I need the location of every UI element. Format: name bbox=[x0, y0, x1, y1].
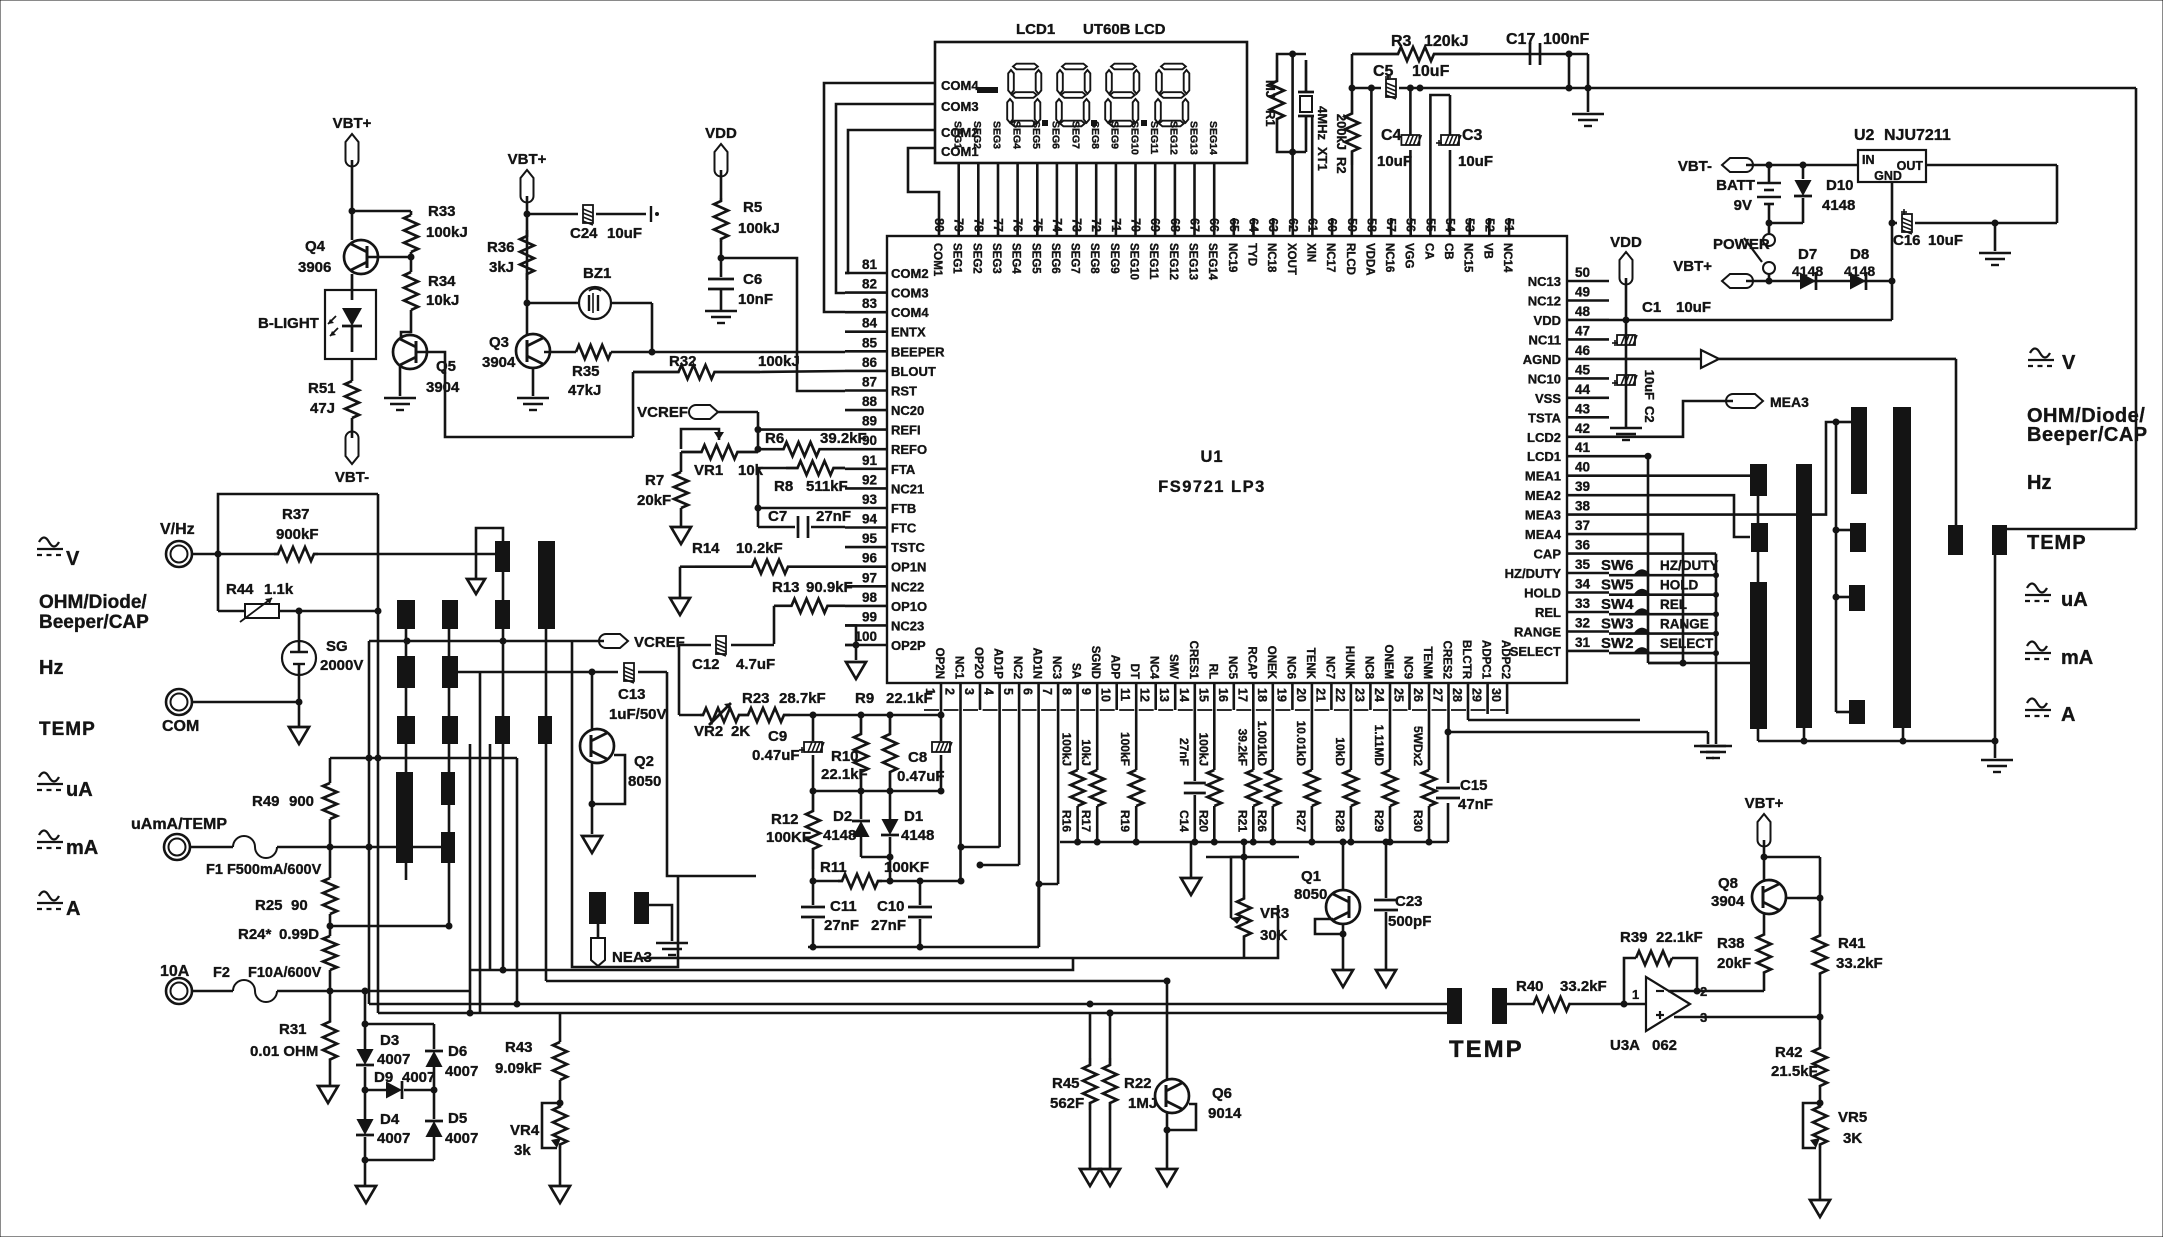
svg-text:3904: 3904 bbox=[482, 354, 516, 371]
svg-text:SG: SG bbox=[326, 638, 348, 655]
svg-text:OP2N: OP2N bbox=[933, 648, 945, 679]
svg-text:94: 94 bbox=[862, 512, 878, 527]
svg-text:34: 34 bbox=[1575, 577, 1591, 592]
svg-text:100KF: 100KF bbox=[884, 859, 929, 876]
svg-text:R38: R38 bbox=[1717, 935, 1745, 952]
svg-text:58: 58 bbox=[1364, 218, 1378, 232]
svg-text:D2: D2 bbox=[833, 808, 852, 825]
svg-text:27nF: 27nF bbox=[816, 508, 851, 525]
svg-text:17: 17 bbox=[1235, 688, 1249, 702]
svg-text:Hz: Hz bbox=[2027, 472, 2051, 494]
svg-text:54: 54 bbox=[1443, 218, 1457, 232]
svg-text:R20: R20 bbox=[1196, 810, 1210, 832]
svg-text:86: 86 bbox=[862, 355, 878, 370]
svg-text:92: 92 bbox=[862, 472, 877, 487]
svg-text:C8: C8 bbox=[908, 749, 927, 766]
svg-text:NC15: NC15 bbox=[1462, 243, 1474, 273]
svg-text:97: 97 bbox=[862, 570, 877, 585]
svg-text:CA: CA bbox=[1422, 243, 1434, 260]
svg-text:FS9721 LP3: FS9721 LP3 bbox=[1158, 478, 1266, 496]
svg-text:RST: RST bbox=[891, 384, 917, 399]
svg-text:C17: C17 bbox=[1506, 31, 1535, 48]
svg-text:CB: CB bbox=[1442, 243, 1454, 260]
svg-text:63: 63 bbox=[1266, 218, 1280, 232]
svg-text:Q3: Q3 bbox=[489, 334, 509, 351]
svg-text:VBT-: VBT- bbox=[335, 469, 369, 486]
svg-text:U1: U1 bbox=[1200, 448, 1223, 466]
svg-text:062: 062 bbox=[1652, 1037, 1677, 1054]
svg-text:CRES2: CRES2 bbox=[1441, 641, 1453, 679]
svg-text:Q1: Q1 bbox=[1301, 868, 1321, 885]
svg-text:F2: F2 bbox=[213, 965, 230, 981]
svg-text:10kJ: 10kJ bbox=[1079, 739, 1093, 766]
svg-text:SEG10: SEG10 bbox=[1128, 121, 1140, 155]
svg-text:NC2: NC2 bbox=[1011, 656, 1023, 679]
svg-text:R21: R21 bbox=[1235, 810, 1249, 832]
svg-text:100KF: 100KF bbox=[766, 829, 811, 846]
svg-text:42: 42 bbox=[1575, 421, 1590, 436]
svg-text:89: 89 bbox=[862, 414, 877, 429]
svg-text:XT1: XT1 bbox=[1315, 147, 1330, 171]
svg-text:XIN: XIN bbox=[1304, 243, 1316, 262]
svg-text:SELECT: SELECT bbox=[1660, 636, 1714, 651]
svg-text:NC12: NC12 bbox=[1528, 294, 1561, 309]
svg-text:10uF: 10uF bbox=[1412, 63, 1450, 80]
svg-text:R26: R26 bbox=[1255, 810, 1269, 832]
svg-text:98: 98 bbox=[862, 590, 878, 605]
svg-text:90: 90 bbox=[291, 897, 308, 914]
svg-text:AD1P: AD1P bbox=[992, 648, 1004, 679]
svg-text:4007: 4007 bbox=[402, 1069, 435, 1086]
svg-text:R19: R19 bbox=[1118, 810, 1132, 832]
svg-text:75: 75 bbox=[1030, 218, 1044, 232]
svg-text:1MJ: 1MJ bbox=[1128, 1095, 1157, 1112]
svg-text:SEG9: SEG9 bbox=[1109, 121, 1121, 149]
svg-text:10uF: 10uF bbox=[1458, 153, 1493, 170]
svg-text:85: 85 bbox=[862, 335, 878, 350]
svg-text:MEA2: MEA2 bbox=[1525, 488, 1561, 503]
svg-text:10uF: 10uF bbox=[607, 225, 642, 242]
svg-text:HZ/DUTY: HZ/DUTY bbox=[1660, 558, 1719, 573]
svg-text:TYD: TYD bbox=[1246, 243, 1258, 266]
svg-text:120kJ: 120kJ bbox=[1424, 33, 1469, 50]
svg-text:ONEM: ONEM bbox=[1382, 645, 1394, 680]
svg-text:BLCTR: BLCTR bbox=[1460, 640, 1472, 680]
svg-text:25: 25 bbox=[1392, 688, 1406, 702]
svg-text:mA: mA bbox=[66, 837, 98, 859]
svg-text:COM2: COM2 bbox=[891, 266, 929, 281]
svg-text:SEG14: SEG14 bbox=[1206, 243, 1218, 281]
svg-text:21.5kF: 21.5kF bbox=[1771, 1063, 1818, 1080]
svg-text:51: 51 bbox=[1502, 218, 1516, 232]
svg-text:REFO: REFO bbox=[891, 442, 927, 457]
svg-text:37: 37 bbox=[1575, 518, 1590, 533]
svg-text:REL: REL bbox=[1660, 597, 1687, 612]
svg-text:R43: R43 bbox=[505, 1039, 533, 1056]
svg-text:73: 73 bbox=[1070, 218, 1084, 232]
svg-text:57: 57 bbox=[1384, 218, 1398, 232]
svg-text:ADP: ADP bbox=[1109, 655, 1121, 680]
svg-text:SEG6: SEG6 bbox=[1050, 121, 1062, 149]
svg-text:D9: D9 bbox=[374, 1069, 393, 1086]
svg-text:96: 96 bbox=[862, 551, 878, 566]
svg-text:R49: R49 bbox=[252, 793, 280, 810]
svg-text:CAP: CAP bbox=[1534, 547, 1562, 562]
svg-text:C5: C5 bbox=[1373, 63, 1394, 80]
svg-text:100kJ: 100kJ bbox=[426, 224, 468, 241]
svg-text:ADPC1: ADPC1 bbox=[1480, 640, 1492, 680]
svg-text:SEG11: SEG11 bbox=[1147, 243, 1159, 280]
svg-text:38: 38 bbox=[1575, 499, 1591, 514]
svg-text:200kJ: 200kJ bbox=[1334, 114, 1349, 150]
svg-text:ENTX: ENTX bbox=[891, 325, 926, 340]
svg-text:R41: R41 bbox=[1838, 935, 1866, 952]
svg-text:R33: R33 bbox=[428, 203, 456, 220]
svg-text:SW2: SW2 bbox=[1601, 635, 1634, 652]
svg-text:900: 900 bbox=[289, 793, 314, 810]
svg-text:OP2O: OP2O bbox=[972, 647, 984, 679]
svg-text:Beeper/CAP: Beeper/CAP bbox=[39, 612, 149, 633]
svg-text:50: 50 bbox=[1575, 265, 1590, 280]
svg-text:100kF: 100kF bbox=[1118, 732, 1132, 766]
svg-text:26: 26 bbox=[1411, 688, 1425, 702]
svg-text:SEG5: SEG5 bbox=[1029, 243, 1041, 274]
svg-text:C6: C6 bbox=[743, 271, 762, 288]
svg-text:SELECT: SELECT bbox=[1510, 644, 1561, 659]
svg-text:VBT+: VBT+ bbox=[1745, 795, 1784, 812]
svg-text:10: 10 bbox=[1099, 688, 1113, 702]
svg-text:R39: R39 bbox=[1620, 929, 1648, 946]
svg-text:10k: 10k bbox=[738, 462, 764, 479]
svg-text:NC4: NC4 bbox=[1148, 656, 1160, 680]
svg-text:C15: C15 bbox=[1460, 777, 1488, 794]
svg-text:COM4: COM4 bbox=[941, 78, 979, 93]
svg-text:60: 60 bbox=[1325, 218, 1339, 232]
svg-text:SEG7: SEG7 bbox=[1069, 121, 1081, 149]
svg-text:4148: 4148 bbox=[823, 827, 856, 844]
svg-text:R8: R8 bbox=[774, 478, 793, 495]
svg-text:R6: R6 bbox=[765, 430, 784, 447]
svg-text:Q2: Q2 bbox=[634, 753, 654, 770]
svg-text:29: 29 bbox=[1470, 688, 1484, 702]
svg-text:R37: R37 bbox=[282, 506, 310, 523]
svg-text:BLOUT: BLOUT bbox=[891, 364, 936, 379]
svg-text:10kJ: 10kJ bbox=[426, 292, 459, 309]
svg-text:35: 35 bbox=[1575, 557, 1591, 572]
svg-text:VR2: VR2 bbox=[694, 723, 723, 740]
svg-text:39.2kF: 39.2kF bbox=[820, 430, 867, 447]
svg-text:4007: 4007 bbox=[445, 1130, 478, 1147]
svg-text:Q4: Q4 bbox=[305, 238, 326, 255]
svg-text:C4: C4 bbox=[1381, 127, 1402, 144]
svg-text:10uF: 10uF bbox=[1676, 299, 1711, 316]
svg-text:SEG10: SEG10 bbox=[1128, 243, 1140, 280]
svg-text:TEMP: TEMP bbox=[2027, 532, 2087, 554]
svg-text:NC3: NC3 bbox=[1050, 656, 1062, 679]
svg-text:Q8: Q8 bbox=[1718, 875, 1738, 892]
svg-text:1.11MD: 1.11MD bbox=[1372, 725, 1386, 767]
svg-text:HZ/DUTY: HZ/DUTY bbox=[1505, 566, 1562, 581]
svg-text:COM4: COM4 bbox=[891, 305, 929, 320]
svg-text:MEA3: MEA3 bbox=[1525, 508, 1561, 523]
svg-text:R12: R12 bbox=[771, 811, 799, 828]
svg-text:VDD: VDD bbox=[1534, 313, 1561, 328]
svg-text:D3: D3 bbox=[380, 1032, 399, 1049]
svg-text:C7: C7 bbox=[768, 508, 787, 525]
svg-text:9V: 9V bbox=[1734, 197, 1752, 214]
svg-text:SW4: SW4 bbox=[1601, 596, 1634, 613]
svg-text:81: 81 bbox=[862, 257, 878, 272]
svg-text:COM3: COM3 bbox=[941, 99, 979, 114]
svg-text:39: 39 bbox=[1575, 479, 1590, 494]
svg-text:CRES1: CRES1 bbox=[1187, 641, 1199, 680]
svg-text:SEG2: SEG2 bbox=[970, 243, 982, 274]
svg-text:MEA1: MEA1 bbox=[1525, 469, 1561, 484]
svg-text:R1: R1 bbox=[1263, 110, 1278, 127]
svg-text:FTA: FTA bbox=[891, 462, 916, 477]
svg-text:OP2P: OP2P bbox=[891, 638, 926, 653]
svg-text:R51: R51 bbox=[308, 380, 336, 397]
svg-text:VCREF: VCREF bbox=[637, 404, 688, 421]
svg-text:53: 53 bbox=[1463, 218, 1477, 232]
svg-text:87: 87 bbox=[862, 375, 877, 390]
svg-text:67: 67 bbox=[1188, 218, 1202, 232]
svg-text:30K: 30K bbox=[1260, 927, 1288, 944]
svg-text:C3: C3 bbox=[1462, 127, 1483, 144]
svg-text:SGND: SGND bbox=[1089, 646, 1101, 679]
svg-text:39.2kF: 39.2kF bbox=[1235, 729, 1249, 766]
svg-text:Beeper/CAP: Beeper/CAP bbox=[2027, 424, 2148, 446]
svg-text:33.2kF: 33.2kF bbox=[1560, 978, 1607, 995]
svg-text:NC22: NC22 bbox=[891, 579, 924, 594]
svg-text:3k: 3k bbox=[514, 1142, 531, 1159]
svg-text:NC6: NC6 bbox=[1284, 656, 1296, 679]
svg-text:100nF: 100nF bbox=[1543, 31, 1589, 48]
svg-text:V/Hz: V/Hz bbox=[160, 521, 195, 538]
svg-text:R44: R44 bbox=[226, 581, 254, 598]
svg-text:64: 64 bbox=[1247, 218, 1261, 232]
svg-text:R10: R10 bbox=[831, 748, 859, 765]
svg-text:NC21: NC21 bbox=[891, 481, 924, 496]
svg-text:R13: R13 bbox=[772, 579, 800, 596]
svg-text:MEA4: MEA4 bbox=[1525, 527, 1562, 542]
svg-text:C2: C2 bbox=[1642, 406, 1657, 423]
svg-text:C11: C11 bbox=[830, 898, 857, 915]
svg-text:TEMP: TEMP bbox=[1449, 1036, 1524, 1063]
svg-text:100: 100 bbox=[854, 629, 877, 644]
svg-text:RANGE: RANGE bbox=[1514, 625, 1561, 640]
svg-text:10uF: 10uF bbox=[1377, 153, 1412, 170]
svg-text:F10A/600V: F10A/600V bbox=[248, 965, 322, 981]
svg-text:61: 61 bbox=[1305, 218, 1319, 232]
svg-text:BZ1: BZ1 bbox=[583, 265, 611, 282]
svg-text:6: 6 bbox=[1021, 688, 1035, 695]
svg-text:COM: COM bbox=[162, 718, 199, 735]
svg-text:8050: 8050 bbox=[628, 773, 661, 790]
svg-text:V: V bbox=[66, 548, 80, 570]
svg-text:NC13: NC13 bbox=[1528, 274, 1561, 289]
svg-text:SEG12: SEG12 bbox=[1168, 121, 1180, 155]
svg-text:79: 79 bbox=[952, 218, 966, 232]
svg-text:SEG2: SEG2 bbox=[971, 121, 983, 149]
svg-text:27nF: 27nF bbox=[824, 917, 859, 934]
svg-text:TENK: TENK bbox=[1304, 648, 1316, 680]
svg-text:32: 32 bbox=[1575, 616, 1590, 631]
svg-text:R28: R28 bbox=[1333, 810, 1347, 832]
svg-text:SEG8: SEG8 bbox=[1088, 243, 1100, 274]
svg-text:48: 48 bbox=[1575, 304, 1591, 319]
svg-text:VBT+: VBT+ bbox=[1673, 258, 1712, 275]
svg-text:100kJ: 100kJ bbox=[1060, 733, 1074, 766]
svg-text:NC10: NC10 bbox=[1528, 371, 1561, 386]
svg-text:RCAP: RCAP bbox=[1245, 646, 1257, 679]
svg-text:9: 9 bbox=[1079, 688, 1093, 695]
svg-text:C24: C24 bbox=[570, 225, 598, 242]
svg-text:47nF: 47nF bbox=[1458, 796, 1493, 813]
svg-text:69: 69 bbox=[1148, 218, 1162, 232]
svg-text:SEG7: SEG7 bbox=[1069, 243, 1081, 274]
svg-text:22.1kF: 22.1kF bbox=[821, 766, 868, 783]
svg-text:84: 84 bbox=[862, 316, 878, 331]
svg-text:R7: R7 bbox=[645, 472, 664, 489]
svg-text:12: 12 bbox=[1138, 688, 1152, 702]
svg-text:500pF: 500pF bbox=[1388, 913, 1431, 930]
svg-text:RANGE: RANGE bbox=[1660, 617, 1709, 632]
svg-text:71: 71 bbox=[1109, 218, 1123, 232]
svg-text:15: 15 bbox=[1196, 688, 1210, 702]
svg-text:R36: R36 bbox=[487, 239, 515, 256]
svg-text:uA: uA bbox=[2061, 589, 2088, 611]
svg-text:D5: D5 bbox=[448, 1110, 467, 1127]
svg-text:NC7: NC7 bbox=[1323, 656, 1335, 679]
svg-text:R25: R25 bbox=[255, 897, 283, 914]
svg-text:AD1N: AD1N bbox=[1031, 648, 1043, 679]
svg-text:R3: R3 bbox=[1391, 33, 1412, 50]
svg-text:4148: 4148 bbox=[1844, 263, 1875, 279]
svg-text:R35: R35 bbox=[572, 363, 600, 380]
svg-text:80: 80 bbox=[932, 218, 946, 232]
svg-text:59: 59 bbox=[1345, 218, 1359, 232]
svg-text:SEG6: SEG6 bbox=[1049, 243, 1061, 274]
svg-text:R17: R17 bbox=[1079, 810, 1093, 832]
svg-text:SEG12: SEG12 bbox=[1167, 243, 1179, 280]
svg-text:3kJ: 3kJ bbox=[489, 259, 514, 276]
svg-text:COM3: COM3 bbox=[891, 286, 929, 301]
svg-text:VB: VB bbox=[1481, 243, 1493, 259]
svg-text:LCD2: LCD2 bbox=[1527, 430, 1561, 445]
svg-text:SEG13: SEG13 bbox=[1187, 121, 1199, 155]
svg-text:20kF: 20kF bbox=[1717, 955, 1751, 972]
svg-text:V: V bbox=[2062, 352, 2076, 374]
svg-text:HOLD: HOLD bbox=[1660, 578, 1698, 593]
svg-text:SEG14: SEG14 bbox=[1207, 121, 1219, 155]
svg-text:3: 3 bbox=[962, 688, 976, 695]
svg-text:4007: 4007 bbox=[377, 1130, 410, 1147]
svg-text:FTB: FTB bbox=[891, 501, 916, 516]
svg-text:900kF: 900kF bbox=[276, 526, 319, 543]
svg-text:D8: D8 bbox=[1850, 246, 1869, 263]
svg-text:10uF: 10uF bbox=[1642, 370, 1657, 400]
svg-text:NC14: NC14 bbox=[1501, 243, 1513, 273]
svg-text:A: A bbox=[66, 898, 80, 920]
svg-text:VR1: VR1 bbox=[694, 462, 723, 479]
svg-text:0.01 OHM: 0.01 OHM bbox=[250, 1043, 318, 1060]
svg-text:22.1kF: 22.1kF bbox=[886, 690, 933, 707]
svg-text:74: 74 bbox=[1050, 218, 1064, 232]
svg-text:68: 68 bbox=[1168, 218, 1182, 232]
svg-text:VR5: VR5 bbox=[1838, 1109, 1867, 1126]
svg-text:F1 F500mA/600V: F1 F500mA/600V bbox=[206, 862, 322, 878]
svg-text:0.47uF: 0.47uF bbox=[752, 747, 800, 764]
svg-text:OP1N: OP1N bbox=[891, 560, 926, 575]
svg-text:76: 76 bbox=[1011, 218, 1025, 232]
svg-text:UT60B LCD: UT60B LCD bbox=[1083, 21, 1166, 38]
svg-text:95: 95 bbox=[862, 531, 878, 546]
svg-text:XOUT: XOUT bbox=[1285, 243, 1297, 275]
svg-text:7: 7 bbox=[1040, 688, 1054, 695]
svg-text:COM1: COM1 bbox=[931, 243, 943, 277]
svg-text:R14: R14 bbox=[692, 540, 720, 557]
svg-text:4148: 4148 bbox=[901, 827, 934, 844]
svg-text:R42: R42 bbox=[1775, 1044, 1803, 1061]
svg-text:33: 33 bbox=[1575, 596, 1591, 611]
svg-text:R40: R40 bbox=[1516, 978, 1544, 995]
svg-text:LCD1: LCD1 bbox=[1527, 449, 1561, 464]
svg-text:RLCD: RLCD bbox=[1344, 243, 1356, 275]
svg-text:47J: 47J bbox=[310, 400, 335, 417]
svg-text:OP1O: OP1O bbox=[891, 599, 927, 614]
svg-text:47kJ: 47kJ bbox=[568, 382, 601, 399]
svg-text:9014: 9014 bbox=[1208, 1105, 1242, 1122]
svg-text:VDD: VDD bbox=[1610, 234, 1642, 251]
svg-text:562F: 562F bbox=[1050, 1095, 1084, 1112]
svg-text:28: 28 bbox=[1450, 688, 1464, 702]
svg-text:B-LIGHT: B-LIGHT bbox=[258, 315, 319, 332]
svg-text:ONEK: ONEK bbox=[1265, 646, 1277, 680]
svg-text:2000V: 2000V bbox=[320, 657, 363, 674]
svg-text:90.9kF: 90.9kF bbox=[806, 579, 853, 596]
svg-text:36: 36 bbox=[1575, 538, 1591, 553]
svg-text:MEA3: MEA3 bbox=[1770, 394, 1809, 410]
svg-text:27nF: 27nF bbox=[871, 917, 906, 934]
svg-text:VSS: VSS bbox=[1535, 391, 1561, 406]
svg-text:FTC: FTC bbox=[891, 521, 917, 536]
svg-text:R31: R31 bbox=[279, 1021, 307, 1038]
svg-text:LCD1: LCD1 bbox=[1016, 21, 1055, 38]
svg-text:Hz: Hz bbox=[39, 657, 63, 679]
svg-text:OHM/Diode/: OHM/Diode/ bbox=[39, 592, 147, 613]
svg-text:1: 1 bbox=[1632, 987, 1639, 1002]
svg-text:C16: C16 bbox=[1893, 232, 1921, 249]
svg-text:D1: D1 bbox=[904, 808, 923, 825]
svg-text:BATT: BATT bbox=[1716, 177, 1755, 194]
svg-text:31: 31 bbox=[1575, 635, 1591, 650]
svg-text:23: 23 bbox=[1352, 688, 1366, 702]
svg-text:11: 11 bbox=[1118, 688, 1132, 701]
svg-text:REFI: REFI bbox=[891, 423, 921, 438]
svg-text:NC8: NC8 bbox=[1362, 656, 1374, 680]
svg-text:22.1kF: 22.1kF bbox=[1656, 929, 1703, 946]
svg-text:VDDA: VDDA bbox=[1363, 243, 1375, 276]
svg-text:D10: D10 bbox=[1826, 177, 1854, 194]
svg-text:C9: C9 bbox=[768, 728, 787, 745]
svg-text:R29: R29 bbox=[1372, 810, 1386, 832]
svg-text:R24*: R24* bbox=[238, 926, 272, 943]
svg-text:8: 8 bbox=[1060, 688, 1074, 695]
svg-text:93: 93 bbox=[862, 492, 878, 507]
svg-text:4: 4 bbox=[982, 688, 996, 695]
svg-text:DT: DT bbox=[1128, 664, 1140, 679]
